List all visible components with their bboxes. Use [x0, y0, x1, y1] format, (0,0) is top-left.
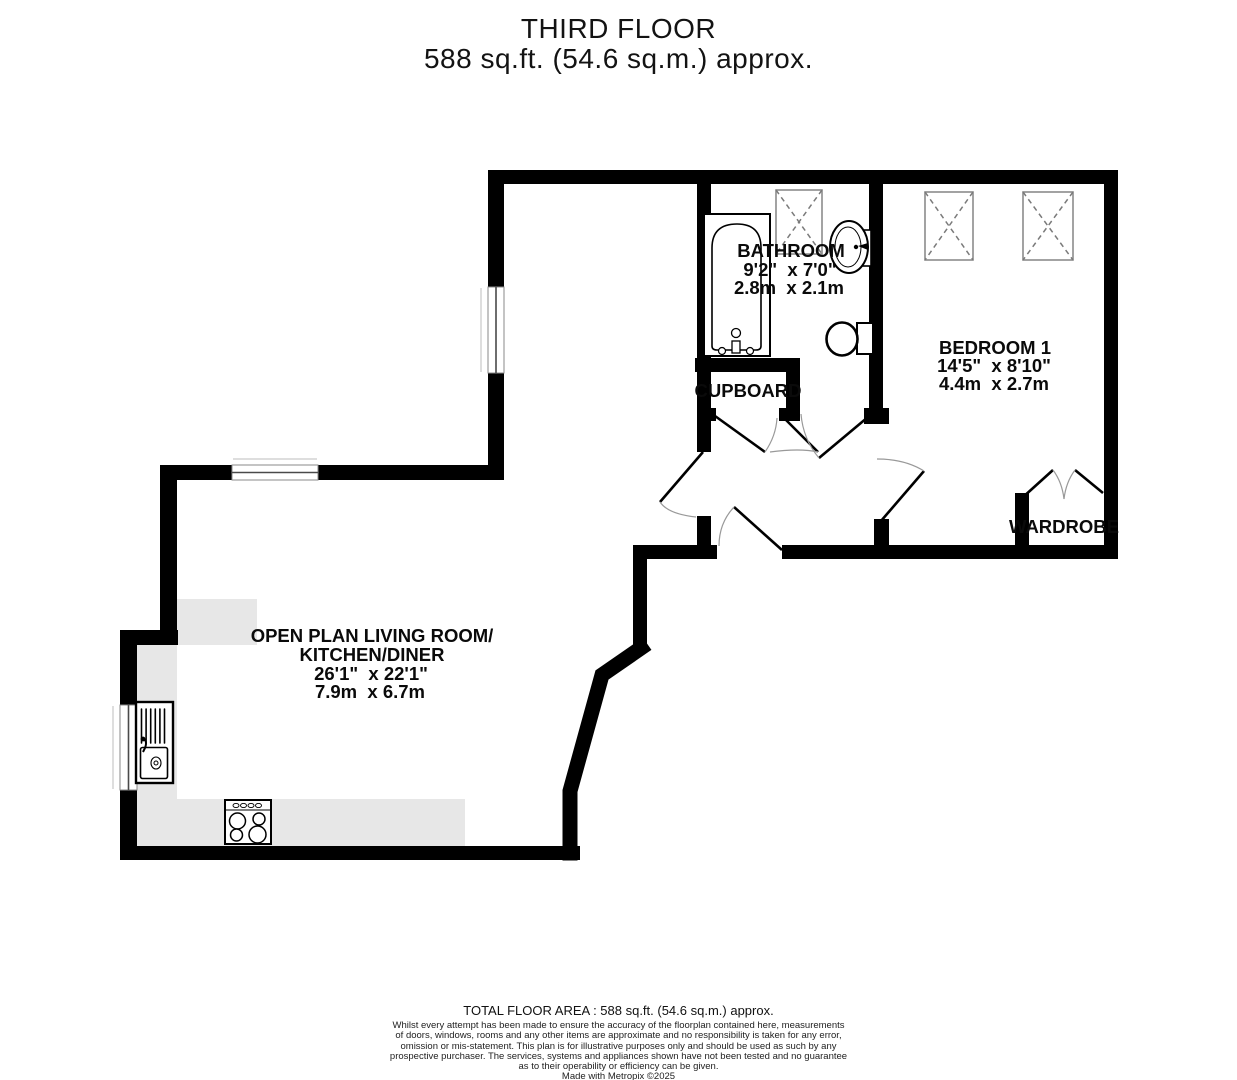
wardrobe-door-right [1064, 470, 1103, 499]
wall-diag-vertical [633, 558, 647, 649]
metropix-credit: Made with Metropix ©2025 [0, 1072, 1237, 1080]
bathtub-tap [732, 341, 740, 353]
wall-diagonal [570, 648, 641, 853]
total-floor-area: TOTAL FLOOR AREA : 588 sq.ft. (54.6 sq.m… [0, 1003, 1237, 1018]
window-upper-left [481, 287, 504, 373]
footer-block: TOTAL FLOOR AREA : 588 sq.ft. (54.6 sq.m… [0, 1003, 1237, 1080]
entrance-door [719, 507, 782, 550]
toilet-bowl [827, 323, 858, 356]
wall-bottom-hall [633, 545, 717, 559]
bathroom-label: BATHROOM [737, 240, 845, 261]
bathtub-drain [732, 329, 741, 338]
living-label-line2: KITCHEN/DINER [300, 644, 445, 665]
toilet-cistern [857, 323, 873, 354]
wall-hall-stub [697, 516, 711, 545]
toilet [827, 323, 874, 356]
wall-top-living [160, 465, 504, 480]
wall-bottom-living [120, 846, 580, 860]
kitchen-sink-unit [136, 702, 173, 783]
skylight-bedroom-2 [1023, 192, 1073, 260]
bedroom-door [877, 459, 924, 521]
counter-bottom-strip [137, 799, 465, 846]
wardrobe-label: WARDROBE [1009, 516, 1119, 537]
wall-right [1104, 170, 1118, 559]
bedroom-size-metric: 4.4m x 2.7m [939, 373, 1049, 394]
living-label-line1: OPEN PLAN LIVING ROOM/ [251, 625, 494, 646]
wall-bottom-bedroom [782, 545, 1118, 559]
cupboard-door-left [715, 416, 777, 452]
floorplan-svg: BATHROOM 9'2" x 7'0" 2.8m x 2.1m BEDROOM… [0, 0, 1237, 1080]
living-size-metric: 7.9m x 6.7m [315, 681, 425, 702]
bathroom-size-metric: 2.8m x 2.1m [734, 277, 844, 298]
walls [120, 170, 1118, 860]
cupboard-label: CUPBOARD [695, 380, 802, 401]
wall-top [488, 170, 1118, 184]
counter-top-block [177, 599, 257, 645]
wall-bath-cupboard-divider [695, 358, 800, 372]
hob [225, 800, 271, 844]
jamb-cupboard-right [779, 408, 800, 421]
jamb-bedroom-hinge [874, 519, 889, 545]
living-room-door [660, 452, 703, 517]
wall-left-living-upper [160, 465, 177, 632]
jamb-cupboard-left [699, 408, 716, 421]
wall-bedroom-left [869, 184, 883, 411]
skylight-bedroom-1 [925, 192, 973, 260]
floorplan-page: THIRD FLOOR 588 sq.ft. (54.6 sq.m.) appr… [0, 0, 1237, 1080]
window-lower-left [113, 705, 137, 790]
window-top-living [232, 459, 318, 480]
